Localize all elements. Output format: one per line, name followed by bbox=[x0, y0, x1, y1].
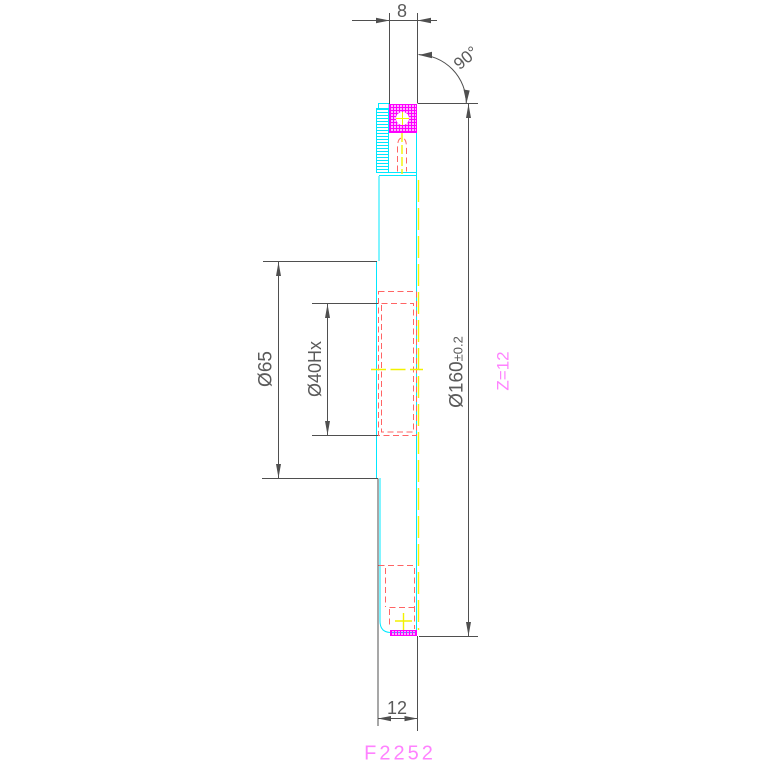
bore-diameter-label: Ø40Hx bbox=[306, 341, 324, 397]
cad-drawing-canvas: 8 90° Ø65 Ø40Hx Ø160±0.2 Z=12 12 F2252 bbox=[0, 0, 767, 767]
outer-diameter-value: Ø160 bbox=[447, 361, 468, 407]
part-number-label: F2252 bbox=[364, 743, 436, 766]
outer-diameter-tolerance: ±0.2 bbox=[451, 336, 466, 361]
dim-top-width bbox=[352, 13, 437, 104]
outer-diameter-label: Ø160±0.2 bbox=[448, 336, 467, 408]
dim-thickness bbox=[378, 479, 418, 732]
thickness-12-label: 12 bbox=[387, 699, 407, 717]
dimension-8-label: 8 bbox=[397, 2, 407, 20]
part-outline bbox=[376, 104, 417, 634]
boss-diameter-label: Ø65 bbox=[257, 351, 276, 387]
teeth-count-label: Z=12 bbox=[495, 351, 512, 390]
rim-hole-cross-v bbox=[402, 112, 403, 125]
bottom-rim-hatch bbox=[390, 630, 417, 636]
hidden-lines bbox=[379, 138, 417, 629]
hub-section-hatch bbox=[376, 108, 389, 172]
